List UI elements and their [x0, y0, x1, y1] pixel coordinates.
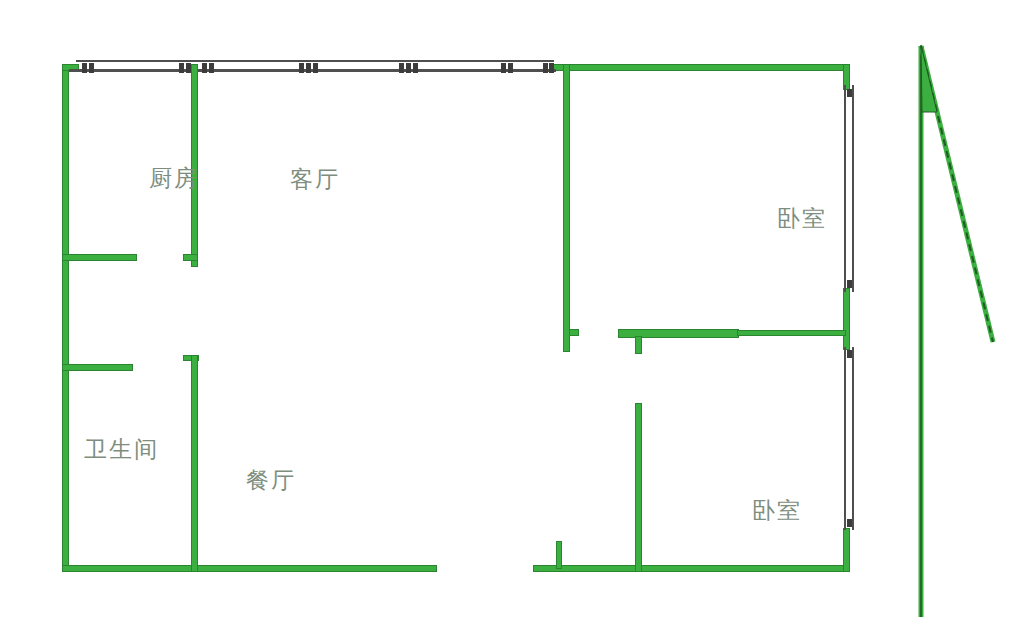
- window-tick: [209, 63, 214, 73]
- wall-kitchen-right-foot: [183, 254, 198, 261]
- window-cap: [847, 519, 852, 527]
- window-bedroom-bottom: [844, 347, 854, 530]
- window-tick: [549, 63, 554, 73]
- room-label-bedroom-bottom: 卧室: [752, 497, 802, 525]
- window-tick: [313, 63, 318, 73]
- window-tick: [179, 63, 184, 73]
- window-tick: [501, 63, 506, 73]
- window-tick: [399, 63, 404, 73]
- floor-plan: 厨房 客厅 卧室 卫生间 餐厅 卧室: [0, 0, 1024, 617]
- window-cap: [847, 280, 852, 288]
- wall-entrance-stub: [556, 541, 562, 569]
- window-tick: [413, 63, 418, 73]
- window-top-outer-line: [76, 60, 554, 62]
- window-cap: [847, 89, 852, 97]
- wall-bathroom-right: [191, 355, 198, 572]
- room-label-bathroom: 卫生间: [84, 436, 159, 464]
- wall-bedroom-divider-stub: [635, 336, 642, 354]
- room-label-bedroom-top: 卧室: [777, 205, 827, 233]
- wall-bottom-right-segment: [533, 565, 848, 572]
- window-tick: [82, 63, 87, 73]
- wall-central-vertical: [563, 64, 570, 352]
- room-label-dining-room: 餐厅: [246, 467, 296, 495]
- window-tick: [89, 63, 94, 73]
- room-label-kitchen: 厨房: [149, 165, 199, 193]
- window-bedroom-top: [844, 85, 854, 292]
- room-label-living-room: 客厅: [290, 166, 340, 194]
- window-tick: [508, 63, 513, 73]
- window-tick: [202, 63, 207, 73]
- wall-right-bottom: [843, 528, 850, 572]
- wall-top-right-segment: [552, 64, 850, 71]
- window-cap: [847, 350, 852, 358]
- wall-bathroom-top: [62, 364, 133, 371]
- wall-left: [62, 64, 69, 572]
- wall-central-stub: [569, 329, 579, 336]
- window-tick: [543, 63, 548, 73]
- wall-bedroom-bottom-left: [635, 403, 642, 572]
- window-tick: [406, 63, 411, 73]
- wall-kitchen-bottom: [62, 254, 137, 261]
- wall-right-middle: [843, 288, 850, 350]
- wall-bottom-left-segment: [62, 565, 437, 572]
- north-arrow-icon: [895, 40, 1020, 617]
- window-tick: [299, 63, 304, 73]
- window-tick: [306, 63, 311, 73]
- wall-bedroom-divider-thin: [737, 330, 846, 336]
